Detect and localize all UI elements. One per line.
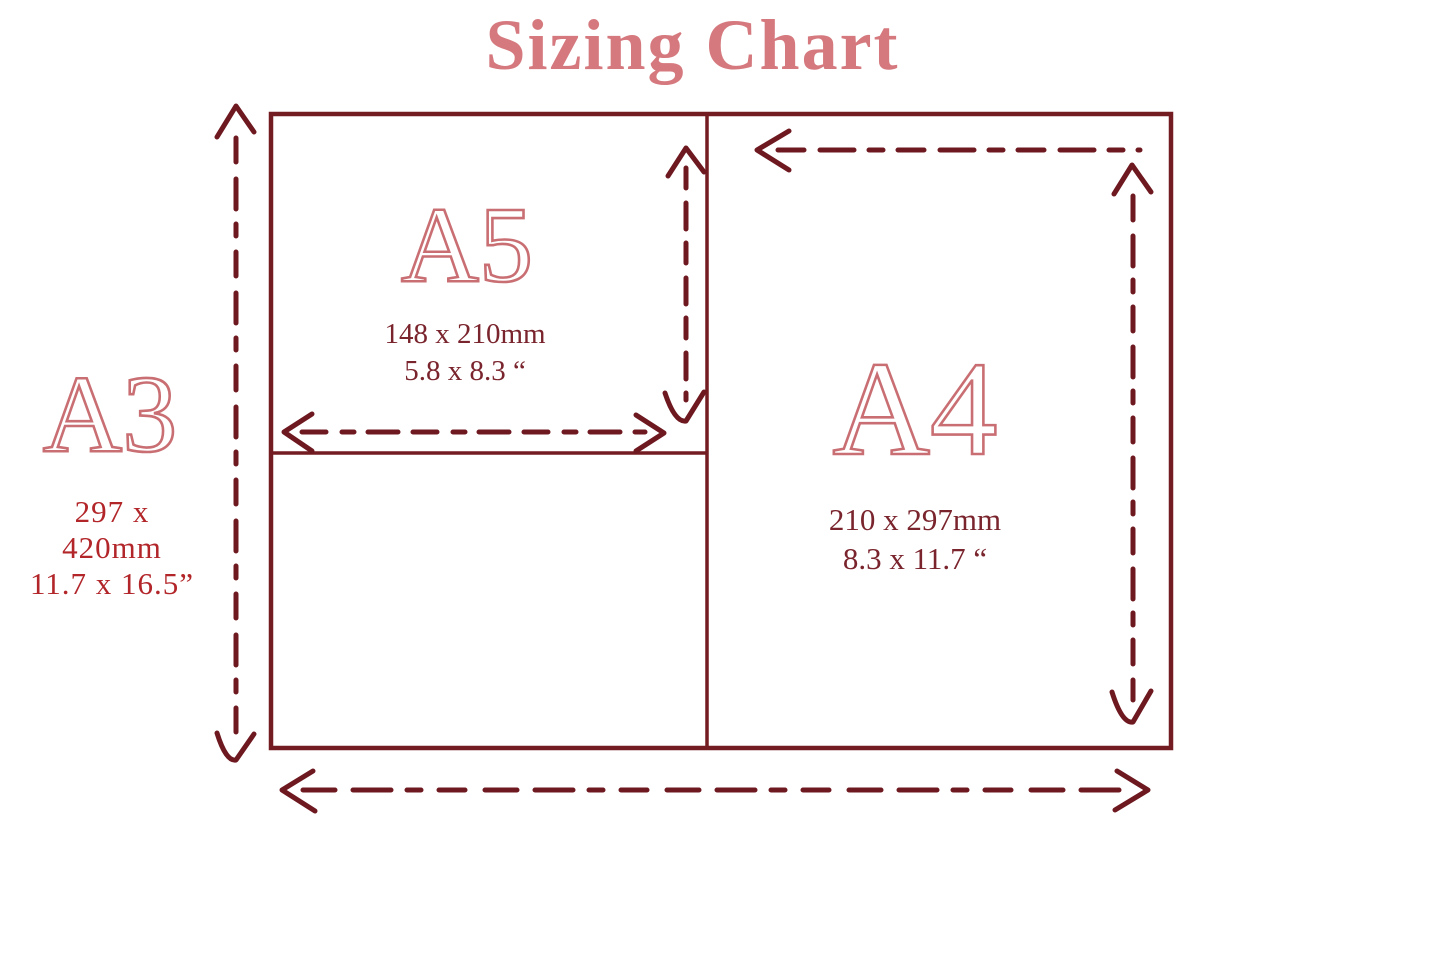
- a5-dimensions-mm: 148 x 210mm: [330, 316, 600, 353]
- a3-dimensions-mm-line2: 420mm: [12, 530, 212, 566]
- a4-height-arrow: [1112, 165, 1151, 722]
- a5-dimensions: 148 x 210mm 5.8 x 8.3 “: [330, 316, 600, 390]
- sizing-diagram: A5 A4 A3: [0, 0, 1445, 963]
- a3-dimensions-inches: 11.7 x 16.5”: [12, 566, 212, 602]
- a5-height-arrow: [665, 148, 704, 421]
- a4-width-arrow: [757, 131, 1140, 170]
- a3-width-arrow: [282, 771, 1148, 811]
- a5-dimensions-inches: 5.8 x 8.3 “: [330, 353, 600, 390]
- a3-height-arrow: [217, 106, 254, 760]
- a3-dimensions: 297 x 420mm 11.7 x 16.5”: [12, 494, 212, 602]
- a4-dimensions: 210 x 297mm 8.3 x 11.7 “: [765, 500, 1065, 578]
- a3-size-label: A3: [43, 353, 177, 475]
- sizing-chart-page: Sizing Chart: [0, 0, 1445, 963]
- a4-dimensions-mm: 210 x 297mm: [765, 500, 1065, 539]
- a4-dimensions-inches: 8.3 x 11.7 “: [765, 539, 1065, 578]
- a4-size-label: A4: [833, 335, 998, 484]
- a5-size-label: A5: [401, 186, 533, 305]
- a5-width-arrow: [284, 414, 664, 451]
- a3-dimensions-mm-line1: 297 x: [12, 494, 212, 530]
